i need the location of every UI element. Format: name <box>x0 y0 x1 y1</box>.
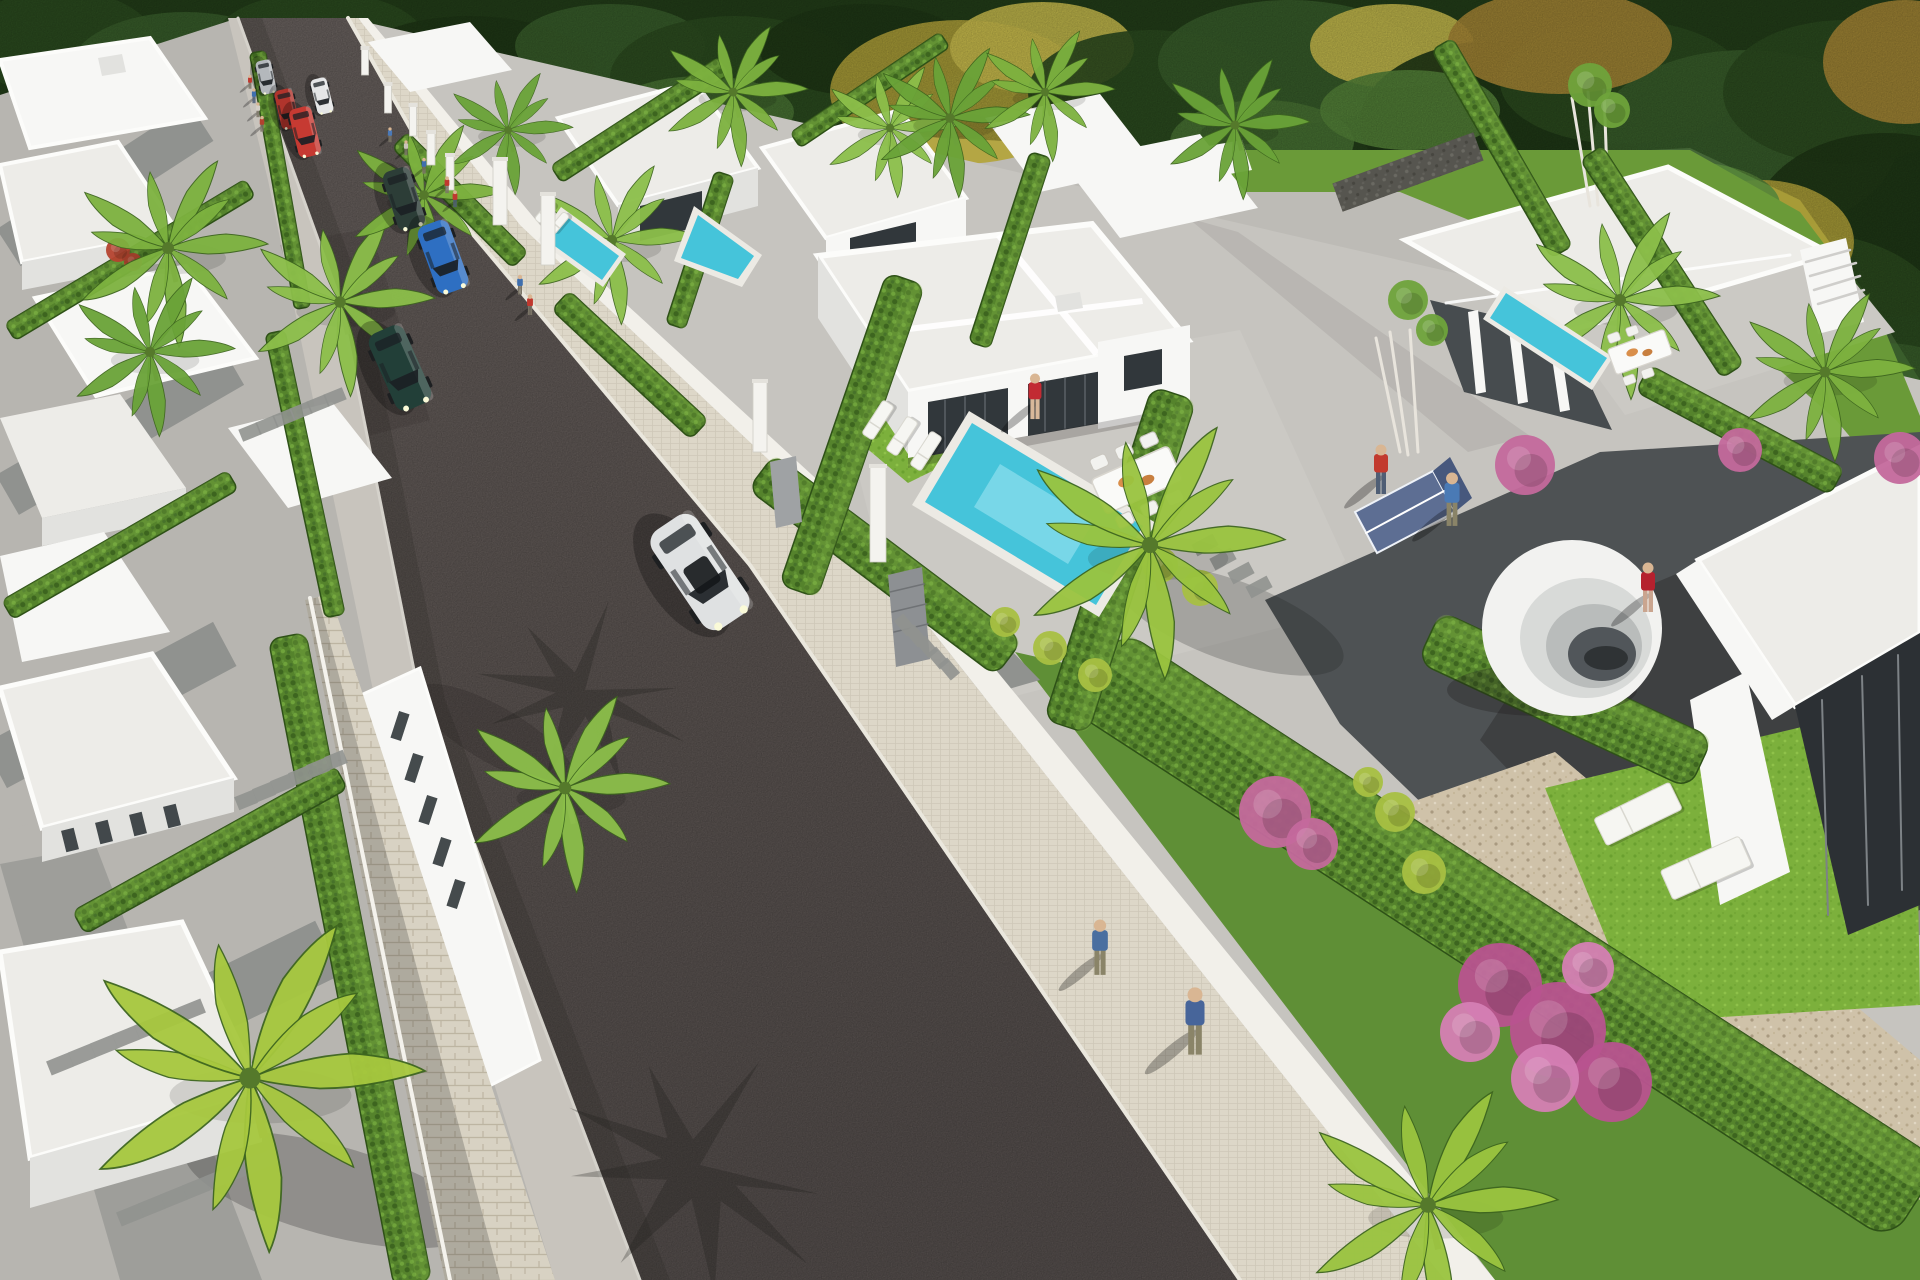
head <box>252 88 255 91</box>
head <box>1094 919 1106 931</box>
leg <box>262 124 263 131</box>
torso <box>422 161 426 167</box>
leg <box>520 285 522 294</box>
post <box>541 195 555 265</box>
render-stage <box>0 0 1920 1280</box>
head <box>404 140 407 143</box>
leg <box>424 166 425 173</box>
post <box>493 160 507 225</box>
shrub-magenta2 <box>1440 1002 1500 1062</box>
torso <box>527 298 533 306</box>
palm-crown <box>1041 88 1049 96</box>
post <box>870 467 886 562</box>
shrub-lime <box>1375 792 1415 832</box>
torso <box>1641 572 1655 591</box>
head <box>1643 563 1654 574</box>
gate-pillar <box>752 379 768 452</box>
palm-crown <box>1231 121 1240 130</box>
villa-window <box>1124 349 1162 391</box>
post-cap <box>869 464 887 468</box>
torso <box>453 194 458 200</box>
leg <box>518 285 520 294</box>
palm-crown <box>162 242 174 254</box>
post <box>410 106 417 136</box>
post-cap <box>492 157 508 161</box>
leg <box>253 96 254 103</box>
leg <box>1094 949 1099 975</box>
leg <box>260 124 261 131</box>
leg <box>1035 398 1039 419</box>
shrub-light <box>1253 790 1282 819</box>
head <box>1376 445 1387 456</box>
head <box>445 176 449 180</box>
shrub-light <box>1727 436 1745 454</box>
torso <box>1185 1000 1204 1025</box>
leg <box>1649 589 1654 612</box>
post <box>362 49 369 75</box>
leg <box>445 185 447 193</box>
shrub-pink <box>1495 435 1555 495</box>
daybed-seat <box>1584 646 1628 670</box>
fence-post <box>384 82 393 113</box>
shrub-light <box>1507 446 1531 470</box>
head <box>518 275 522 279</box>
torso <box>260 119 264 125</box>
shrub-lime <box>1353 767 1383 797</box>
leg <box>1196 1023 1202 1054</box>
gate-pillar <box>540 192 556 265</box>
shrub-green <box>1594 92 1630 128</box>
shrub-light <box>1411 858 1429 876</box>
shrub-light <box>1884 442 1905 463</box>
head <box>260 116 264 120</box>
shrub-light <box>1422 320 1435 333</box>
post-cap <box>426 130 436 134</box>
post-cap <box>752 379 768 383</box>
leg <box>249 82 250 88</box>
leg <box>1188 1023 1194 1054</box>
head <box>528 294 533 299</box>
shrub-light <box>1296 828 1317 849</box>
post-cap <box>445 153 455 157</box>
leg <box>389 135 390 142</box>
leg <box>1101 949 1106 975</box>
shrub-lime <box>1033 631 1067 665</box>
shrub-green <box>1388 280 1428 320</box>
shrub-green <box>1416 314 1448 346</box>
head <box>1446 472 1458 484</box>
shrub-light <box>1396 288 1412 304</box>
torso <box>1374 454 1388 473</box>
head <box>248 75 251 78</box>
shrub-light <box>1572 952 1593 973</box>
palm-crown <box>886 124 894 132</box>
torso <box>388 130 392 136</box>
leg <box>390 135 391 142</box>
post <box>385 85 392 113</box>
fence-post <box>409 103 418 136</box>
torso <box>252 91 256 97</box>
torso <box>1092 930 1108 951</box>
head <box>1188 987 1203 1002</box>
leg <box>1382 471 1387 494</box>
shrub-lime <box>990 607 1020 637</box>
leg <box>1030 398 1034 419</box>
palm-crown <box>729 88 738 97</box>
shrub-light <box>996 613 1008 625</box>
shrub-light <box>1475 959 1509 993</box>
gate-pillar <box>869 464 887 562</box>
leg <box>258 110 259 117</box>
palm-crown <box>1142 537 1158 553</box>
leg <box>1453 501 1458 526</box>
head <box>422 158 426 162</box>
torso <box>1444 483 1459 503</box>
shrub-pink <box>1718 428 1762 472</box>
leg <box>250 82 251 88</box>
leg <box>528 305 530 315</box>
post <box>427 133 435 165</box>
head <box>388 127 391 130</box>
palm-crown <box>559 782 572 795</box>
head <box>256 102 259 105</box>
shrub-magenta2 <box>1562 942 1614 994</box>
leg <box>1376 471 1381 494</box>
leg <box>406 148 407 155</box>
palm-crown <box>1820 367 1831 378</box>
torso <box>1029 382 1042 399</box>
shrub-lime <box>1402 850 1446 894</box>
palm-crown <box>1420 1197 1436 1213</box>
palm-crown <box>945 113 955 123</box>
post-cap <box>361 46 370 50</box>
leg <box>455 199 457 207</box>
shrub-magenta2 <box>1511 1044 1579 1112</box>
shrub-light <box>1359 773 1371 785</box>
palm-crown <box>1614 294 1626 306</box>
shrub-pink <box>1286 818 1338 870</box>
shrub-magenta <box>1572 1042 1652 1122</box>
palm-crown <box>240 1068 261 1089</box>
post-cap <box>384 82 393 86</box>
shrub-light <box>1601 99 1615 113</box>
villa-development-aerial-render <box>0 0 1920 1280</box>
shrub-light <box>1525 1057 1552 1084</box>
shrub-light <box>1529 1000 1567 1038</box>
leg <box>422 166 423 173</box>
post-cap <box>409 103 418 107</box>
shrub-light <box>1040 637 1054 651</box>
torso <box>256 105 260 111</box>
leg <box>530 305 532 315</box>
leg <box>453 199 455 207</box>
shrub-light <box>1383 800 1399 816</box>
fence-post <box>426 130 436 165</box>
head <box>1030 374 1040 384</box>
shrub-lime <box>1078 658 1112 692</box>
gate-pillar <box>492 157 508 225</box>
leg <box>447 185 449 193</box>
torso <box>248 78 252 83</box>
torso <box>404 143 408 149</box>
shrub-light <box>1452 1013 1476 1037</box>
torso <box>517 279 523 286</box>
leg <box>254 96 255 103</box>
post-cap <box>540 192 556 196</box>
leg <box>1643 589 1648 612</box>
leg <box>405 148 406 155</box>
torso <box>445 180 450 186</box>
palm-crown <box>419 190 429 200</box>
fence-post <box>361 46 370 75</box>
post <box>753 382 767 452</box>
palm-crown <box>334 296 345 307</box>
shrub-light <box>1577 71 1595 89</box>
palm-crown <box>145 347 155 357</box>
leg <box>257 110 258 117</box>
head <box>453 190 457 194</box>
leg <box>1447 501 1452 526</box>
shrub-light <box>1588 1057 1620 1089</box>
palm-crown <box>504 126 512 134</box>
shrub-light <box>1085 664 1099 678</box>
